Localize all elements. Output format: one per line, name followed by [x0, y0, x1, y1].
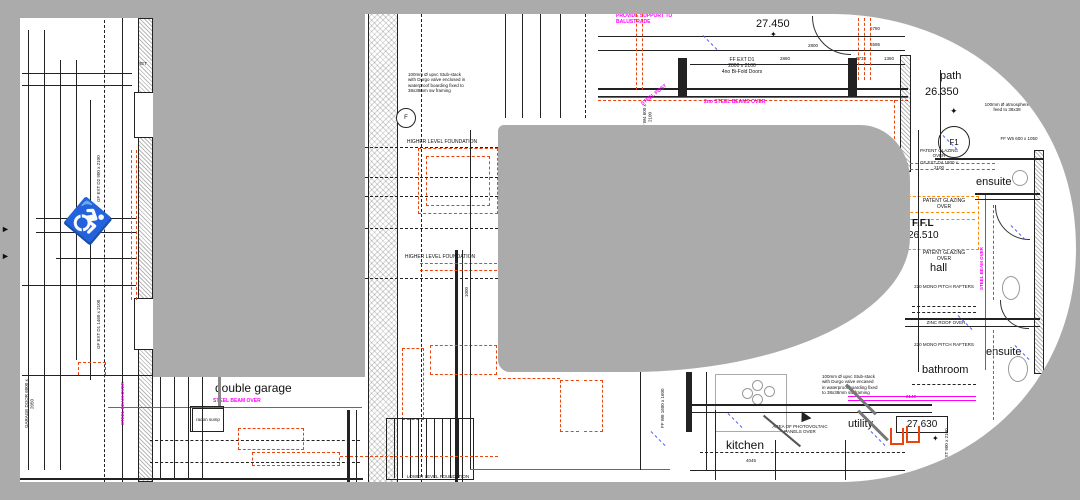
path-label: path [940, 70, 961, 82]
stair-tread [434, 418, 435, 478]
wall-line [706, 372, 707, 470]
wheelchair-icon: ♿ [60, 194, 115, 249]
foundation-line [78, 362, 106, 375]
basin-fixture [1012, 170, 1028, 186]
mask-letter-counter [498, 125, 910, 372]
window-label: FF W5 600 x 1050 [996, 136, 1042, 141]
leader-line [940, 70, 941, 158]
staircase [386, 418, 474, 480]
foundation-line [426, 156, 490, 206]
dimension-line [690, 470, 905, 471]
foundation-line [340, 456, 498, 457]
stair-tread [458, 418, 459, 478]
reference-bubble: F [396, 108, 416, 128]
steel-beam-line [848, 400, 976, 401]
steel-beam-line [848, 396, 976, 397]
dimension-text: 1360 [876, 56, 902, 61]
level-marker-icon: ✦ [950, 106, 958, 117]
wall-line [640, 372, 641, 470]
dimension-line [540, 14, 541, 118]
window-label: FF W8 1600 x 1600 [660, 386, 665, 430]
dimension-line [845, 440, 846, 480]
steel-beam-line [108, 407, 362, 408]
foundation-line [498, 378, 560, 379]
foundation-line [636, 14, 637, 90]
dimension-line [22, 85, 132, 86]
level-value: 27.450 [756, 18, 790, 30]
floor-plan: GF EXT D2 900 x 2100 GF EXT D1 1460 x 21… [0, 0, 1080, 500]
door-label: GF EXT D2 900 x 2100 [96, 150, 101, 208]
foundation-line [858, 18, 859, 80]
ffl-level: 26.510 [908, 230, 939, 241]
glazing-line [905, 212, 975, 213]
foundation-line [420, 263, 497, 264]
hob-burner [752, 380, 763, 391]
dimension-text: 6595 [862, 42, 888, 47]
dimension-text: 2860 [772, 56, 798, 61]
hidden-line [365, 177, 498, 178]
foundation-line [252, 452, 340, 466]
stair-tread [442, 418, 443, 478]
stair-tread [426, 418, 427, 478]
stair-tread [402, 418, 403, 478]
hidden-line [365, 278, 498, 279]
room-label-bathroom: bathroom [922, 364, 968, 376]
rafters-note: 220 MONO PITCH RAFTERS [914, 342, 974, 347]
dimension-line [44, 30, 45, 470]
hidden-line [365, 147, 498, 148]
steel-post [848, 58, 857, 96]
radon-sump-box: radon sump [190, 406, 224, 432]
wall-line [686, 372, 692, 432]
room-label-ensuite-upper: ensuite [976, 176, 1011, 188]
level-marker-icon: ✦ [770, 30, 777, 39]
wall-line [918, 130, 919, 372]
path-level: 26.350 [925, 86, 959, 98]
steel-beam-note-vertical: STEEL BEAM OVER [120, 378, 125, 430]
dimension-line [22, 285, 136, 286]
dimension-line [522, 14, 523, 118]
stair-tread [450, 418, 451, 478]
external-wall [138, 18, 153, 482]
steel-post [678, 58, 687, 96]
door-label: FF EXT D1 2800 x 2100 4no Bi-Fold Doors [712, 57, 772, 75]
hidden-line [365, 196, 498, 197]
window-opening [134, 92, 158, 138]
dimension-line [715, 410, 716, 480]
foundation-line [906, 426, 920, 443]
room-label-kitchen: kitchen [726, 438, 764, 452]
radon-sump-label: radon sump [196, 418, 220, 423]
dimension-line [505, 14, 506, 118]
hob-burner [742, 388, 753, 399]
sump-leader [218, 377, 221, 406]
door-label: GF EXT 900 x 2100 [944, 426, 949, 470]
hidden-line [700, 452, 905, 453]
wall-line [347, 410, 350, 482]
steel-beam-note-vertical: STEEL BEAM OVER [979, 240, 984, 298]
dimension-text: 4045 [738, 458, 764, 463]
dimension-line [22, 73, 132, 74]
foundation-line [890, 428, 904, 445]
glazed-wall [598, 88, 908, 97]
foundation-line [131, 150, 132, 300]
foundation-line [136, 150, 137, 300]
services-line [993, 330, 994, 420]
grid-line [585, 14, 586, 118]
foundation-line [238, 428, 304, 450]
room-label-double-garage: double garage [215, 381, 292, 395]
dimension-line [560, 14, 561, 118]
dimension-line [22, 375, 152, 376]
foundation-line [402, 348, 424, 420]
patent-glazing-note: PATENT GLAZING OVER [918, 148, 960, 159]
rafter-line [912, 306, 976, 307]
foundation-line [420, 270, 497, 271]
wc-fixture [1008, 356, 1028, 382]
door-opening [134, 298, 158, 350]
dimension-line [775, 440, 776, 480]
door-label: GF EXT D1 1460 x 2100 [96, 295, 101, 353]
garage-door-label: GARAGE DOOR 6000 x 2050 [24, 376, 35, 432]
stair-tread [410, 418, 411, 478]
steel-beam-line [985, 195, 986, 370]
level-marker-icon: ✦ [932, 434, 939, 443]
balustrade-note: PROVIDE SUPPORT TO BALUSTRADE [616, 13, 680, 25]
stub-stack-note: 100mm Ø upvc Stub-stack with Durgo valve… [408, 72, 466, 94]
grid-line [104, 20, 105, 482]
door-swing-arc [995, 205, 1030, 240]
services-line [993, 205, 994, 300]
door-label-desc: 4no Bi-Fold Doors [722, 69, 762, 75]
internal-wall [690, 404, 932, 413]
atmosphere-note: 100mm Ø atmosphere feed to 38x38 [982, 102, 1032, 113]
retaining-label: RET [138, 61, 154, 66]
foundation-line [560, 380, 579, 432]
rafters-note: 220 MONO PITCH RAFTERS [914, 284, 974, 289]
stair-tread [418, 418, 419, 478]
patent-glazing-note: PATENT GLAZING OVER [922, 250, 966, 262]
external-wall [1034, 150, 1044, 374]
internal-wall [975, 193, 1040, 200]
wall-line [20, 478, 363, 480]
foundation-line [864, 18, 865, 80]
rafter-line [912, 312, 976, 313]
wc-fixture [1002, 276, 1020, 300]
room-label-hall: hall [930, 262, 947, 274]
dimension-line [60, 60, 61, 470]
hob-burner [764, 386, 775, 397]
foundation-line [430, 345, 497, 375]
wall-line [356, 410, 357, 482]
retaining-wall-hatch [368, 14, 398, 482]
stub-stack-note: 100mm Ø upvc Stub-stack with Durgo valve… [822, 374, 878, 396]
ffl-label: F.F.L [912, 218, 934, 229]
dimension-text: 6780 [862, 26, 888, 31]
foundation-line [642, 14, 643, 90]
margin-arrow-icon: ► [1, 251, 10, 261]
stair-tread [394, 418, 395, 478]
dimension-line [56, 258, 136, 259]
foundation-line [584, 380, 603, 432]
foundation-note: LOWER LEVEL FOUNDATION [392, 474, 484, 479]
steel-beams-note: 2no STEEL BEAMS OVER [704, 99, 794, 105]
steel-beam-note: STEEL BEAM OVER [213, 398, 273, 404]
mask-letter-counter [153, 14, 365, 377]
tanking-label: TANKING MEMBRANE [357, 55, 362, 135]
rafter-line [912, 384, 976, 385]
foundation-line [870, 18, 871, 80]
foundation-note: HIGHER LEVEL FOUNDATION [400, 139, 484, 145]
dimension-text: 1000 [464, 282, 469, 302]
margin-arrow-icon: ► [1, 224, 10, 234]
hidden-line [365, 228, 498, 229]
drawing-sheet: ► ► GF EXT D2 900 x 2100 GF EXT D1 1460 … [0, 0, 1080, 500]
